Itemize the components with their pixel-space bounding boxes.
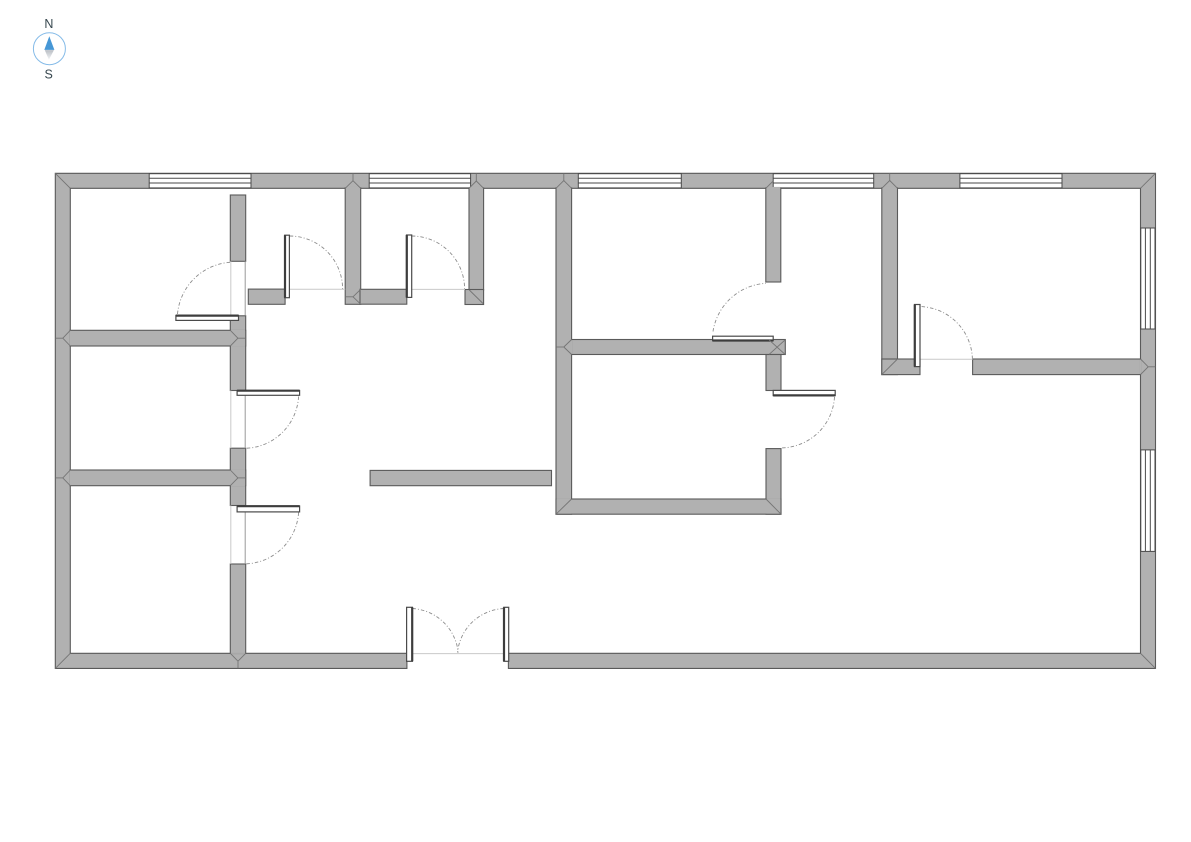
svg-text:S: S — [45, 68, 53, 82]
svg-text:N: N — [44, 17, 53, 31]
